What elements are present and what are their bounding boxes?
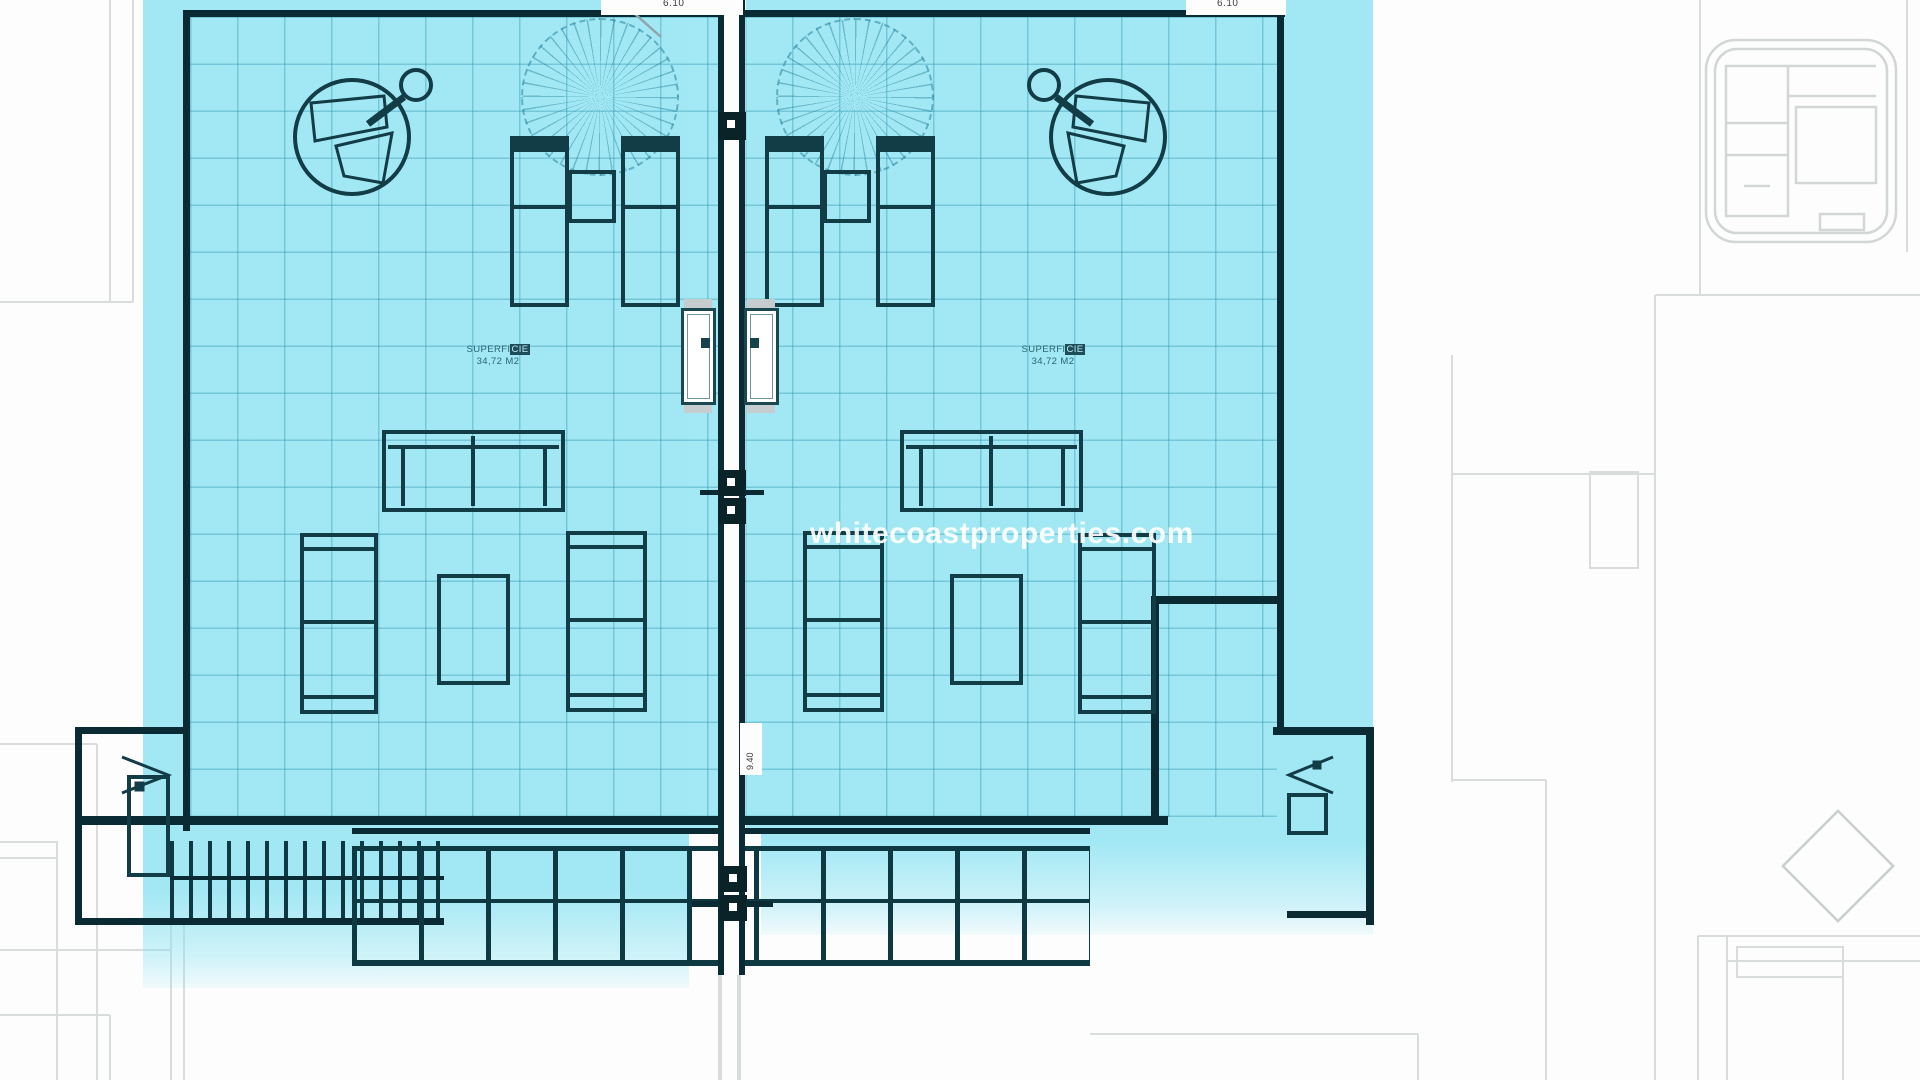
area-label-line2: 34,72 M2	[443, 356, 553, 368]
area-label-line1: SUPERFICIE	[443, 344, 553, 356]
post-box-icon	[720, 866, 747, 892]
side-table-left	[570, 172, 614, 221]
post-box-icon	[718, 470, 746, 496]
post-box-icon	[718, 112, 746, 140]
sun-lounger-right-2	[878, 138, 933, 305]
area-label-line2: 34,72 M2	[998, 356, 1108, 368]
loveseat-left-a	[302, 535, 376, 712]
loveseat-left-b	[568, 533, 645, 710]
dimension-width-left: 6.10	[663, 0, 684, 9]
hanging-chair-icon-right	[1029, 70, 1165, 194]
area-label-right: SUPERFICIE 34,72 M2	[998, 344, 1108, 368]
entry-arrow-icon-left	[122, 757, 168, 793]
post-box-icon	[720, 895, 747, 921]
dimension-depth: 9.40	[745, 752, 755, 770]
area-label-line1: SUPERFICIE	[998, 344, 1108, 356]
loveseat-right-b	[1080, 535, 1154, 712]
door-panel-right	[744, 308, 779, 405]
dimension-width-right: 6.10	[1217, 0, 1238, 9]
sun-lounger-left-2	[623, 138, 678, 305]
hanging-chair-icon-left	[295, 70, 431, 194]
sun-lounger-right-1	[767, 138, 822, 305]
loveseat-right-a	[805, 533, 882, 710]
sun-lounger-left-1	[512, 138, 567, 305]
area-label-left: SUPERFICIE 34,72 M2	[443, 344, 553, 368]
entry-arrow-icon-right	[1289, 757, 1333, 793]
floor-plan-canvas: 6.10 6.10 9.40 SUPERFICIE 34,72 M2 SUPER…	[0, 0, 1920, 1080]
watermark-text: whitecoastproperties.com	[810, 517, 1120, 551]
sofa-left	[384, 432, 563, 510]
sofa-right	[902, 432, 1081, 510]
post-box-icon	[718, 498, 746, 524]
door-panel-left	[681, 308, 716, 405]
coffee-table-right	[952, 576, 1021, 683]
side-table-right	[825, 172, 869, 221]
coffee-table-left	[439, 576, 508, 683]
